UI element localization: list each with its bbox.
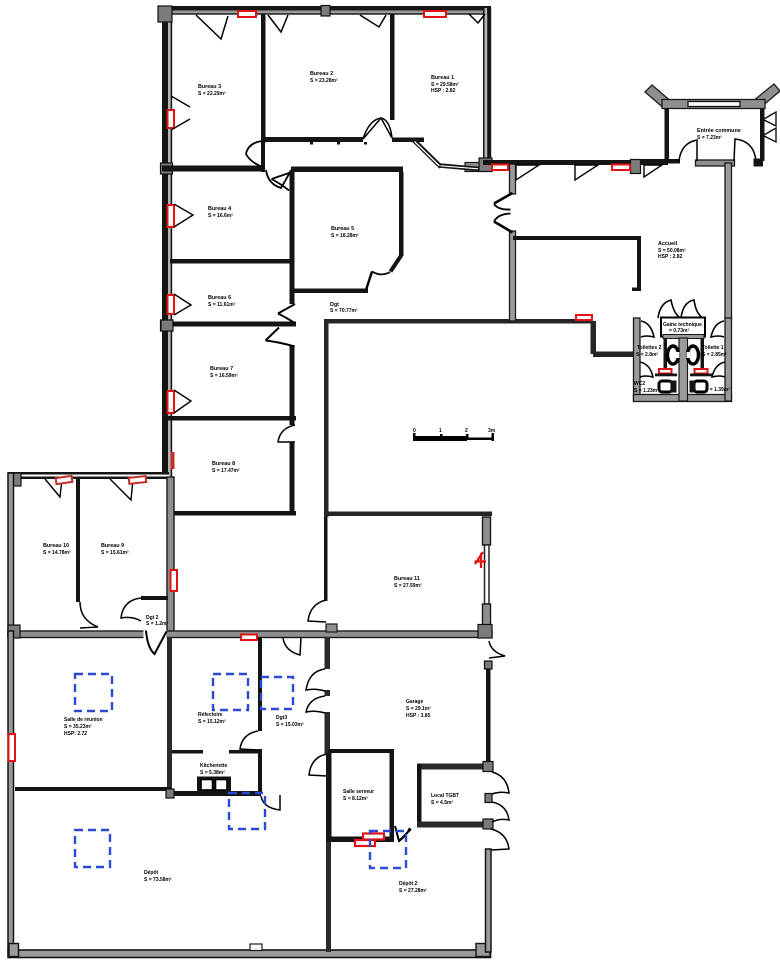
- svg-text:S = 14.78m²: S = 14.78m²: [43, 550, 71, 556]
- svg-text:HSP : 3.85: HSP : 3.85: [406, 713, 431, 719]
- svg-text:HSP : 2.82: HSP : 2.82: [658, 254, 683, 260]
- svg-text:S = 11.61m²: S = 11.61m²: [208, 302, 236, 308]
- svg-text:Bureau 9: Bureau 9: [101, 543, 124, 549]
- svg-text:S = 15.12m²: S = 15.12m²: [198, 719, 226, 725]
- svg-text:HSP : 2.82: HSP : 2.82: [431, 88, 456, 94]
- svg-text:Kitchenette: Kitchenette: [200, 763, 227, 769]
- svg-text:S = 27.28m²: S = 27.28m²: [399, 888, 427, 894]
- svg-text:Salle de réunion: Salle de réunion: [64, 717, 103, 723]
- svg-text:Bureau 7: Bureau 7: [210, 366, 233, 372]
- svg-text:S = 27.59m²: S = 27.59m²: [394, 583, 422, 589]
- svg-text:Bureau 10: Bureau 10: [43, 543, 69, 549]
- svg-text:Salle serveur: Salle serveur: [343, 789, 374, 795]
- svg-text:3m: 3m: [488, 428, 496, 434]
- svg-text:HSP: 2.72: HSP: 2.72: [64, 731, 87, 737]
- svg-text:S = 73.58m²: S = 73.58m²: [144, 877, 172, 883]
- svg-text:S = 4.5m²: S = 4.5m²: [431, 800, 453, 806]
- svg-text:S = 16.6m²: S = 16.6m²: [208, 213, 233, 219]
- svg-text:S = 2.85m²: S = 2.85m²: [702, 352, 727, 358]
- svg-text:Entrée commune: Entrée commune: [697, 128, 741, 134]
- svg-text:S = 1.2m²: S = 1.2m²: [146, 621, 168, 627]
- svg-text:S = 18.28m²: S = 18.28m²: [331, 233, 359, 239]
- svg-text:S = 17.47m²: S = 17.47m²: [212, 468, 240, 474]
- svg-text:S = 1.39m²: S = 1.39m²: [705, 387, 730, 393]
- svg-text:0: 0: [413, 428, 416, 434]
- svg-text:Dépôt: Dépôt: [144, 870, 159, 876]
- svg-text:Dépôt 2: Dépôt 2: [399, 881, 418, 887]
- svg-text:Bureau 3: Bureau 3: [198, 84, 221, 90]
- svg-text:S = 23.28m²: S = 23.28m²: [310, 78, 338, 84]
- svg-text:WC2: WC2: [634, 381, 645, 387]
- svg-text:S = 35.23m²: S = 35.23m²: [64, 724, 92, 730]
- svg-text:= 0.73m²: = 0.73m²: [669, 328, 689, 334]
- svg-text:S = 70.77m²: S = 70.77m²: [330, 308, 358, 314]
- svg-text:S = 2.8m²: S = 2.8m²: [636, 352, 658, 358]
- svg-text:S = 7.23m²: S = 7.23m²: [697, 135, 722, 141]
- svg-text:Garage: Garage: [406, 699, 423, 705]
- svg-text:Accueil: Accueil: [658, 241, 678, 247]
- svg-text:S = 29.1m²: S = 29.1m²: [406, 706, 431, 712]
- svg-text:Bureau 2: Bureau 2: [310, 71, 333, 77]
- svg-text:Bureau 1: Bureau 1: [431, 75, 454, 81]
- svg-text:2: 2: [465, 428, 468, 434]
- svg-text:Bureau 11: Bureau 11: [394, 576, 420, 582]
- svg-text:1: 1: [439, 428, 442, 434]
- svg-text:Toilette 1: Toilette 1: [702, 345, 724, 351]
- svg-text:S = 16.59m²: S = 16.59m²: [210, 373, 238, 379]
- svg-text:S = 15.03m²: S = 15.03m²: [276, 722, 304, 728]
- svg-text:Local TGBT: Local TGBT: [431, 793, 459, 799]
- svg-text:S = 5.38m²: S = 5.38m²: [200, 770, 225, 776]
- svg-text:Bureau 6: Bureau 6: [208, 295, 231, 301]
- svg-text:Bureau 5: Bureau 5: [331, 226, 354, 232]
- svg-text:Dgt3: Dgt3: [276, 715, 287, 721]
- svg-text:S = 15.61m²: S = 15.61m²: [101, 550, 129, 556]
- svg-text:Toilettes 2: Toilettes 2: [637, 345, 662, 351]
- svg-text:Bureau 8: Bureau 8: [212, 461, 235, 467]
- svg-text:S = 22.29m²: S = 22.29m²: [198, 91, 226, 97]
- svg-text:S = 8.12m²: S = 8.12m²: [343, 796, 368, 802]
- svg-text:Bureau 4: Bureau 4: [208, 206, 231, 212]
- svg-text:S = 1.23m²: S = 1.23m²: [634, 388, 659, 394]
- svg-text:Réfectoire: Réfectoire: [198, 712, 223, 718]
